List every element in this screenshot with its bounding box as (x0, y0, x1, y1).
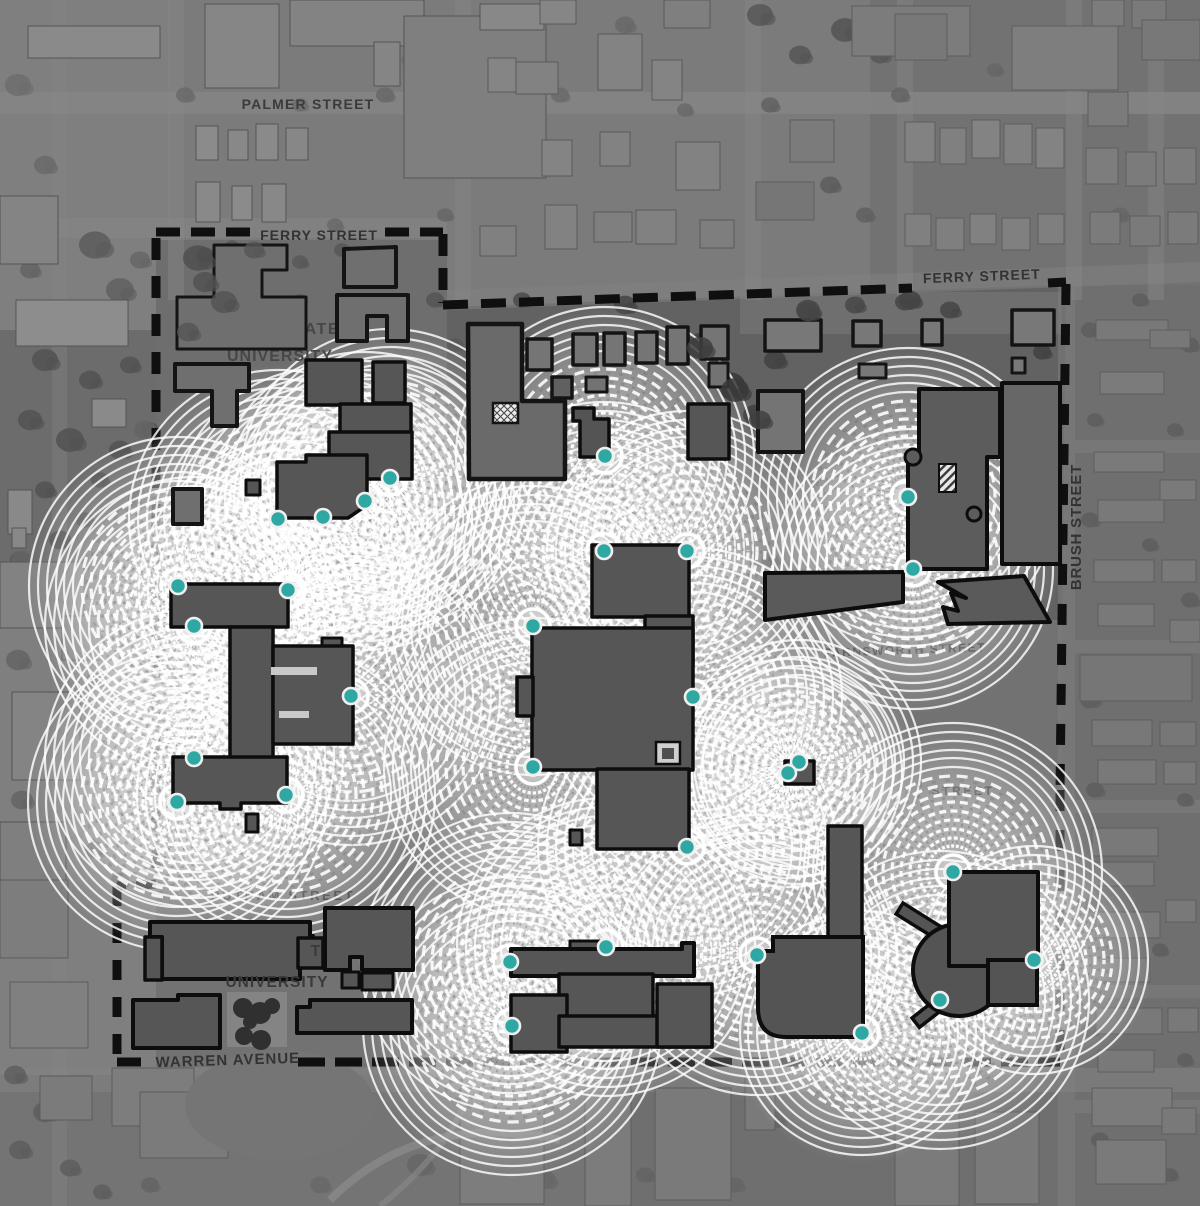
svg-text:PALMER STREET: PALMER STREET (242, 96, 375, 112)
svg-text:UNIVERSITY: UNIVERSITY (225, 974, 328, 991)
svg-text:BRUSH STREET: BRUSH STREET (1068, 464, 1085, 590)
svg-text:FERRY STREET: FERRY STREET (260, 227, 378, 243)
svg-text:T: T (311, 943, 321, 960)
